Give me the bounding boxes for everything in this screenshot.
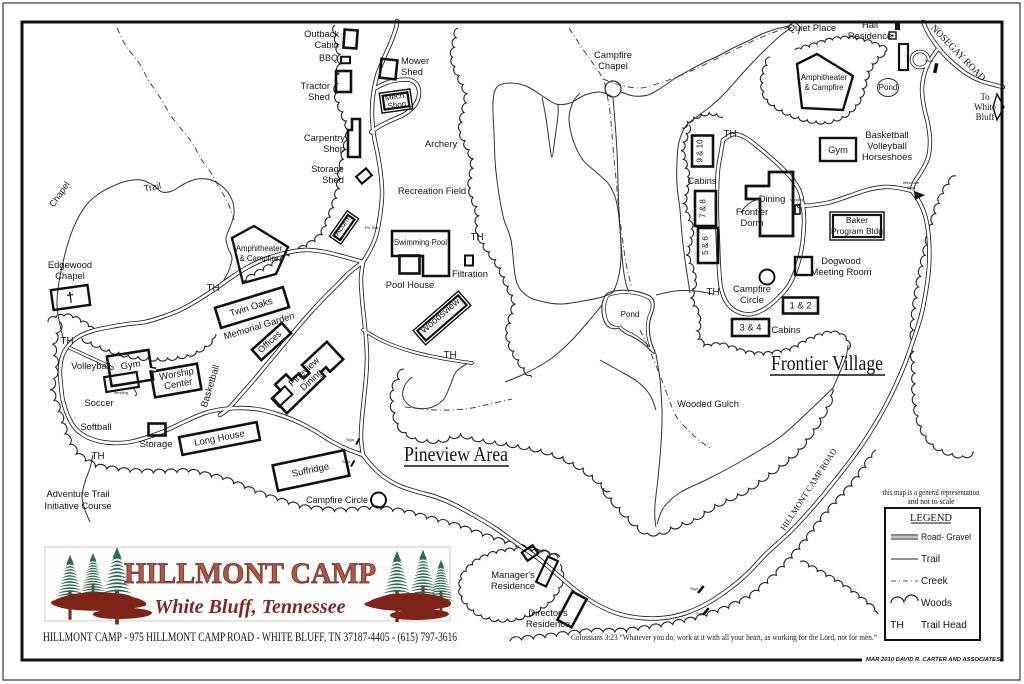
svg-text:TH: TH (60, 336, 73, 347)
svg-text:Quiet Place: Quiet Place (788, 22, 836, 33)
svg-text:Manager'sResidence: Manager'sResidence (491, 569, 535, 591)
svg-text:Sign: Sign (690, 586, 698, 591)
svg-text:Creek: Creek (921, 576, 949, 587)
svg-text:Mech.Shop: Mech.Shop (384, 91, 408, 111)
svg-text:Frontier Village: Frontier Village (771, 351, 883, 375)
svg-text:Director'sResidence: Director'sResidence (526, 607, 570, 629)
svg-text:Wooded Gulch: Wooded Gulch (677, 398, 739, 409)
svg-text:9 & 10: 9 & 10 (696, 139, 705, 163)
svg-text:Amphitheater& Campfire: Amphitheater& Campfire (801, 73, 848, 92)
svg-text:Sign: Sign (696, 611, 704, 616)
svg-text:Vending: Vending (114, 390, 128, 395)
svg-text:3 & 4: 3 & 4 (740, 322, 762, 333)
svg-text:Sign: Sign (342, 459, 350, 464)
svg-text:Pool House: Pool House (386, 279, 434, 290)
svg-text:Trail: Trail (921, 554, 940, 565)
svg-text:Colossians 3:23 “Whatever you: Colossians 3:23 “Whatever you do, work a… (571, 632, 877, 642)
svg-text:Recreation Field: Recreation Field (398, 185, 466, 196)
svg-text:Cabins: Cabins (771, 324, 800, 335)
svg-text:TH: TH (443, 350, 456, 361)
svg-text:5 & 6: 5 & 6 (701, 236, 710, 255)
svg-text:TH: TH (206, 283, 219, 294)
svg-text:7 & 8: 7 & 8 (699, 199, 708, 218)
svg-text:TH: TH (723, 129, 736, 140)
svg-text:Sign: Sign (346, 437, 354, 442)
svg-text:HILLMONT CAMP - 975 HILLMONT C: HILLMONT CAMP - 975 HILLMONT CAMP ROAD -… (43, 629, 457, 644)
svg-text:Gym: Gym (828, 144, 848, 155)
svg-text:TH: TH (706, 287, 719, 298)
svg-text:Road- Gravel: Road- Gravel (921, 532, 971, 543)
svg-text:Dining: Dining (759, 193, 786, 204)
svg-text:Adventure TrailInitiative Cour: Adventure TrailInitiative Course (44, 488, 111, 511)
svg-text:Softball: Softball (80, 421, 111, 432)
svg-text:Sign: Sign (925, 58, 933, 63)
svg-text:Filtration: Filtration (452, 268, 488, 279)
svg-text:TH: TH (890, 619, 904, 631)
svg-text:Volleyball: Volleyball (71, 360, 111, 371)
svg-text:BasketballVolleyballHorseshoes: BasketballVolleyballHorseshoes (862, 129, 912, 162)
svg-text:Woods: Woods (921, 598, 952, 609)
svg-text:CampfireChapel: CampfireChapel (594, 49, 632, 71)
svg-text:Pond: Pond (879, 83, 898, 92)
svg-text:Vending: Vending (790, 197, 804, 202)
svg-text:Storage: Storage (140, 438, 173, 449)
svg-text:Pond: Pond (621, 310, 640, 319)
svg-text:FrontierDorm: FrontierDorm (736, 206, 768, 228)
svg-text:Cabins: Cabins (687, 175, 716, 186)
svg-text:Pineview Area: Pineview Area (404, 442, 509, 466)
svg-text:1 & 2: 1 & 2 (790, 300, 812, 311)
svg-text:Soccer: Soccer (84, 397, 113, 408)
svg-text:RV Site: RV Site (365, 225, 379, 230)
svg-text:Campfire Circle: Campfire Circle (306, 495, 368, 505)
svg-text:TH: TH (91, 451, 104, 462)
svg-text:TH: TH (470, 232, 483, 243)
svg-text:Amphitheater& Campfire: Amphitheater& Campfire (236, 244, 283, 263)
svg-text:HILLMONT CAMP: HILLMONT CAMP (124, 557, 376, 590)
svg-text:LEGEND: LEGEND (910, 513, 952, 524)
svg-text:Swimming Pool: Swimming Pool (394, 237, 447, 247)
svg-text:MAR 2010 DAVID R. CARTER AND A: MAR 2010 DAVID R. CARTER AND ASSOCIATES (866, 657, 1000, 663)
svg-text:Trail Head: Trail Head (921, 620, 967, 631)
svg-text:Archery: Archery (425, 138, 458, 149)
svg-text:White Bluff, Tennessee: White Bluff, Tennessee (155, 596, 346, 618)
svg-text:BBQ: BBQ (319, 53, 338, 63)
